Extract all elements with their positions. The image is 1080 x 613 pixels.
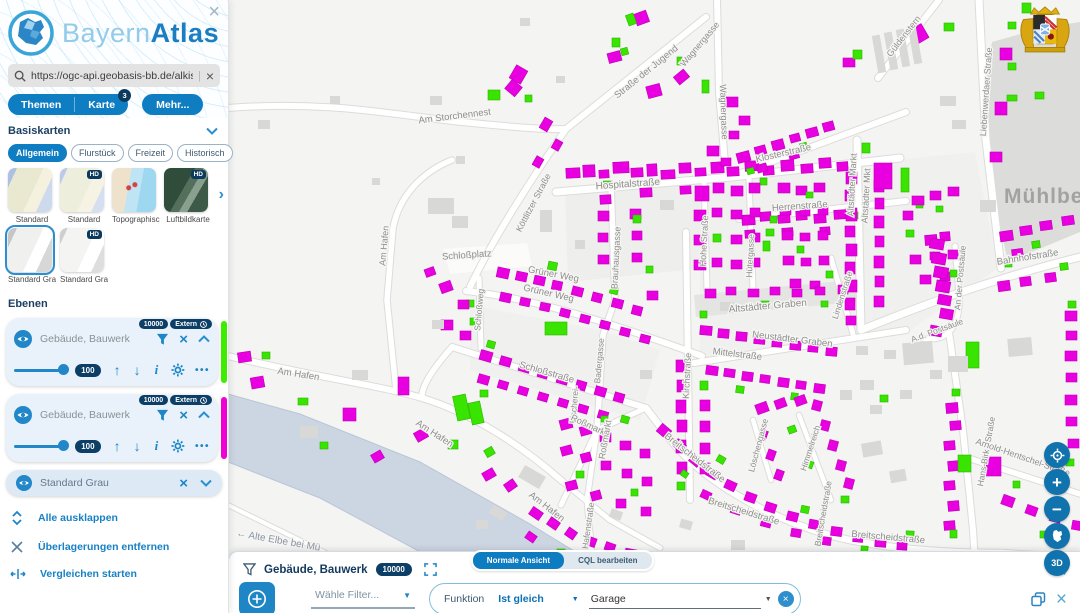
remove-overlays-action[interactable]: Überlagerungen entfernen (10, 540, 228, 554)
hd-badge: HD (87, 170, 102, 179)
close-panel-icon[interactable]: × (1056, 590, 1067, 609)
filter-funnel-outline-icon (243, 563, 256, 576)
layer-name: Gebäude, Bauwerk (40, 333, 146, 345)
tab-freizeit[interactable]: Freizeit (128, 144, 174, 162)
choose-filter-select[interactable]: Wähle Filter... ▼ (311, 589, 415, 609)
layer-info-icon[interactable]: i (155, 438, 159, 454)
toggle-normale-ansicht[interactable]: Normale Ansicht (473, 552, 564, 569)
feature-filter-bar: Gebäude, Bauwerk 10000 Normale Ansicht C… (228, 551, 1080, 613)
move-layer-up-icon[interactable]: ↑ (114, 439, 121, 453)
layer-settings-gear-icon[interactable] (171, 363, 185, 377)
action-label: Alle ausklappen (38, 512, 118, 524)
brand-header: BayernAtlas (0, 0, 228, 58)
hd-badge: HD (87, 230, 102, 239)
layer-info-icon[interactable]: i (155, 362, 159, 378)
chevron-down-icon[interactable] (200, 479, 212, 487)
zoom-out-button[interactable]: − (1044, 496, 1070, 522)
chevron-up-icon[interactable] (198, 335, 210, 343)
bayernatlas-app: Am StorchennestStraße der JugendWagnerga… (0, 0, 1080, 613)
chevron-up-icon[interactable] (198, 411, 210, 419)
expand-all-action[interactable]: Alle ausklappen (10, 510, 228, 526)
basiskarten-header: Basiskarten (8, 125, 218, 137)
tab-flurstueck[interactable]: Flurstück (71, 144, 124, 162)
dropdown-arrow-icon: ▼ (403, 591, 411, 600)
view-mode-toggle: Normale Ansicht CQL bearbeiten (471, 550, 654, 571)
extern-badge: Extern (170, 395, 212, 405)
nav-mehr-button[interactable]: Mehr... (142, 94, 203, 115)
add-filter-button[interactable] (239, 582, 275, 613)
opacity-slider[interactable] (14, 369, 65, 372)
slider-knob[interactable] (58, 440, 69, 451)
layer-color-stripe-green (221, 321, 227, 383)
filterbar-scale-badge: 10000 (376, 563, 412, 576)
filter-funnel-icon[interactable] (156, 409, 169, 422)
clock-icon (200, 321, 207, 328)
geolocate-button[interactable] (1044, 442, 1070, 468)
remove-layer-icon[interactable]: × (179, 476, 188, 491)
basemap-category-tabs: Allgemein Flurstück Freizeit Historisch (8, 144, 228, 162)
basemap-standard-grau-1[interactable] (8, 228, 52, 272)
bavaria-extent-button[interactable] (1044, 523, 1070, 549)
action-label: Überlagerungen entfernen (38, 541, 169, 553)
move-layer-down-icon[interactable]: ↓ (134, 439, 141, 453)
visibility-eye-icon[interactable] (14, 330, 32, 348)
map-canvas[interactable]: Am StorchennestStraße der JugendWagnerga… (228, 0, 1080, 613)
layer-color-stripe-magenta (221, 397, 227, 459)
hd-badge: HD (191, 170, 206, 179)
filter-funnel-icon[interactable] (156, 333, 169, 346)
layer-name: Standard Grau (40, 477, 171, 489)
chevron-down-icon[interactable] (206, 127, 218, 135)
basemap-standard-1[interactable] (8, 168, 52, 212)
opacity-slider[interactable] (14, 445, 65, 448)
search-divider: | (198, 70, 201, 82)
app-title: BayernAtlas (62, 18, 219, 49)
scale-badge: 10000 (139, 395, 168, 405)
basemap-standard-grau-2[interactable]: HD (60, 228, 104, 272)
thumb-label: Standard (60, 215, 108, 224)
tab-allgemein[interactable]: Allgemein (8, 144, 67, 162)
three-d-button[interactable]: 3D (1044, 550, 1070, 576)
close-x-icon (10, 540, 24, 554)
compare-arrows-icon (10, 568, 26, 580)
opacity-value-badge: 100 (75, 364, 100, 377)
map-controls: +−3D (1044, 442, 1070, 577)
filter-operator-select[interactable]: Ist gleich (498, 593, 544, 605)
start-compare-action[interactable]: Vergleichen starten (10, 568, 228, 580)
unfold-icon (10, 510, 24, 526)
layer-card-standard-grau: Standard Grau × (6, 470, 222, 496)
dropdown-arrow-icon[interactable]: ▼ (765, 596, 772, 603)
karte-count-badge: 3 (118, 89, 131, 102)
main-nav: Themen Karte 3 Mehr... (8, 94, 220, 115)
clear-value-icon[interactable]: × (778, 591, 794, 607)
action-label: Vergleichen starten (40, 568, 137, 580)
undock-window-icon[interactable] (1031, 592, 1046, 607)
thumbs-scroll-right-icon[interactable]: › (219, 186, 224, 204)
clock-icon (200, 397, 207, 404)
filter-expression-group: Funktion Ist gleich ▼ Garage ▼ × (429, 583, 801, 613)
choose-filter-placeholder: Wähle Filter... (315, 589, 403, 601)
map-viewport[interactable]: Am StorchennestStraße der JugendWagnerga… (228, 0, 1080, 613)
svg-text:Wagnergasse: Wagnergasse (718, 84, 730, 140)
remove-layer-icon[interactable]: × (179, 332, 188, 347)
move-layer-down-icon[interactable]: ↓ (134, 363, 141, 377)
zoom-in-button[interactable]: + (1044, 469, 1070, 495)
layer-more-menu-icon[interactable]: ••• (195, 365, 210, 376)
filter-value-input[interactable]: Garage (589, 590, 761, 609)
sidebar-panel: × BayernAtlas https://ogc-api.geobasis-b… (0, 0, 229, 613)
bayernatlas-logo (8, 10, 54, 56)
slider-knob[interactable] (58, 364, 69, 375)
basiskarten-title: Basiskarten (8, 125, 70, 137)
search-clear-icon[interactable]: × (206, 69, 214, 83)
nav-themen-button[interactable]: Themen (8, 94, 74, 115)
visibility-eye-icon[interactable] (14, 406, 32, 424)
basemap-topographisch[interactable] (112, 168, 156, 212)
layer-card-gebaeude-1: 10000 Extern Gebäude, Bauwerk × 100 ↑ ↓ … (6, 318, 218, 386)
thumb-label: Standard Grau (60, 275, 108, 284)
thumb-label: Luftbildkarte (164, 215, 212, 224)
extern-badge: Extern (170, 319, 212, 329)
toggle-cql-bearbeiten[interactable]: CQL bearbeiten (564, 552, 651, 569)
opacity-value-badge: 100 (75, 440, 100, 453)
thumb-label: Standard Grau (8, 275, 56, 284)
scale-badge: 10000 (139, 319, 168, 329)
ebenen-header: Ebenen (8, 298, 218, 310)
layer-settings-gear-icon[interactable] (171, 439, 185, 453)
dropdown-arrow-icon[interactable]: ▼ (572, 596, 579, 603)
layer-more-menu-icon[interactable]: ••• (195, 441, 210, 452)
search-bar[interactable]: https://ogc-api.geobasis-bb.de/alkis-ver… (8, 64, 220, 87)
search-input[interactable]: https://ogc-api.geobasis-bb.de/alkis-ver… (31, 70, 193, 82)
zoom-to-extent-icon[interactable] (424, 563, 437, 576)
layer-name: Gebäude, Bauwerk (40, 409, 146, 421)
basemap-thumbnails: Standard HDStandard Topographisch HDLuft… (8, 168, 222, 288)
filterbar-title: Gebäude, Bauwerk (264, 564, 368, 576)
thumb-label: Standard (8, 215, 56, 224)
tab-historisch[interactable]: Historisch (177, 144, 233, 162)
basemap-luftbildkarte[interactable]: HD (164, 168, 208, 212)
visibility-eye-icon[interactable] (16, 475, 32, 491)
thumb-label: Topographisch (112, 215, 160, 224)
search-icon (14, 70, 26, 82)
filter-field-label: Funktion (444, 593, 484, 605)
ebenen-title: Ebenen (8, 298, 48, 310)
panel-close-icon[interactable]: × (208, 2, 220, 22)
bavaria-coat-of-arms (1018, 6, 1072, 65)
remove-layer-icon[interactable]: × (179, 408, 188, 423)
move-layer-up-icon[interactable]: ↑ (114, 363, 121, 377)
svg-text:Mühlberg: Mühlberg (1004, 185, 1080, 208)
basemap-standard-2[interactable]: HD (60, 168, 104, 212)
layer-card-gebaeude-2: 10000 Extern Gebäude, Bauwerk × 100 ↑ ↓ … (6, 394, 218, 462)
